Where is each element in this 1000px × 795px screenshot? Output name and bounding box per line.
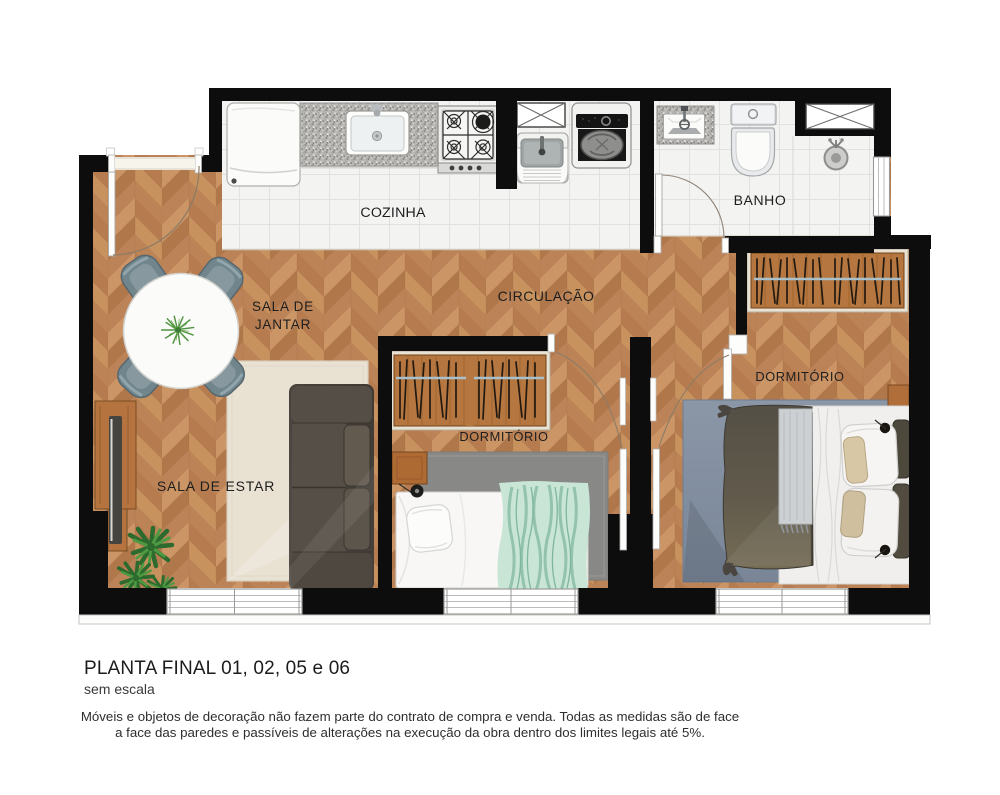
svg-text:SALA DE ESTAR: SALA DE ESTAR [157, 478, 275, 494]
svg-text:CIRCULAÇÃO: CIRCULAÇÃO [498, 288, 595, 304]
svg-text:COZINHA: COZINHA [360, 205, 426, 221]
svg-text:SALA DE: SALA DE [252, 299, 314, 314]
svg-text:BANHO: BANHO [734, 192, 787, 208]
svg-text:JANTAR: JANTAR [255, 317, 311, 332]
svg-text:DORMITÓRIO: DORMITÓRIO [755, 369, 844, 384]
svg-text:DORMITÓRIO: DORMITÓRIO [459, 429, 548, 444]
